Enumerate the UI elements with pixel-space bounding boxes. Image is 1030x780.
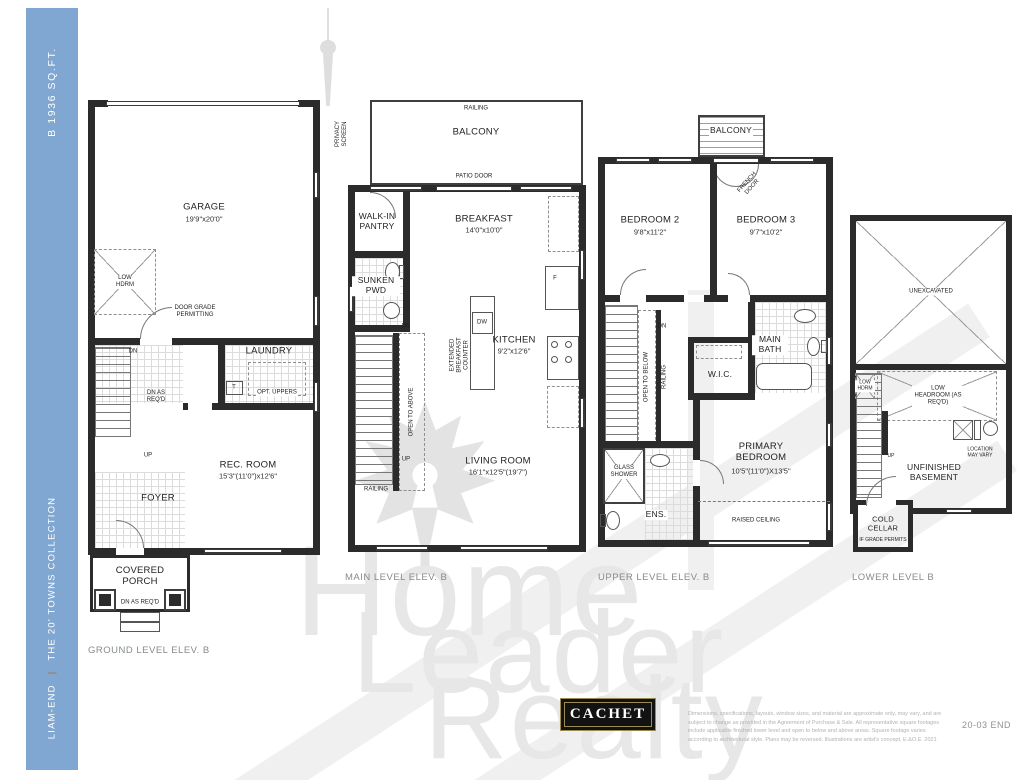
cn-tower-watermark: [320, 40, 336, 55]
collection-label: LIAM-END | THE 20' TOWNS COLLECTION: [47, 497, 58, 740]
open-to-above-label: OPEN TO ABOVE: [409, 388, 416, 437]
raised-ceiling-line: [698, 501, 830, 502]
kitchen-island: [470, 296, 495, 390]
stairs-dn-label: DN: [402, 324, 411, 331]
wall: [853, 500, 866, 505]
railing-stairs-label: RAILING: [364, 487, 388, 494]
window: [460, 546, 548, 551]
bathtub-fixture: [756, 363, 812, 390]
low-headroom-label: LOW HEADROOM (AS REQ'D): [912, 386, 964, 407]
water-heater: [983, 421, 998, 436]
wic-label: W.I.C.: [708, 370, 732, 380]
laundry-label: LAUNDRY: [246, 347, 293, 358]
stairs: [355, 335, 393, 485]
toilet-fixture: [807, 337, 820, 356]
porch-step: [120, 612, 160, 622]
opt-uppers-label: OPT. UPPERS: [256, 390, 298, 397]
stairs-dn-label: DN: [658, 324, 667, 331]
toilet-tank: [600, 514, 606, 527]
floorplan-sheet: Home Leader Realty B 1936 SQ.FT. LIAM-EN…: [0, 0, 1030, 780]
cn-tower-watermark: [323, 54, 333, 106]
cn-tower-watermark: [327, 8, 329, 42]
rec-room-dims: 15'3"(11'0")x12'6": [219, 473, 277, 482]
railing-wall: [882, 411, 888, 455]
upper-cabinets: [548, 196, 579, 252]
foyer-label: FOYER: [141, 494, 175, 505]
primary-bedroom-label: PRIMARY BEDROOM: [728, 442, 794, 464]
door-grade-note: DOOR GRADE PERMITTING: [164, 305, 226, 319]
balcony-outline: [370, 100, 583, 185]
wall: [688, 337, 750, 343]
patio-door: [436, 186, 512, 191]
balcony-label: BALCONY: [453, 128, 500, 139]
wall: [348, 185, 355, 552]
floor-plan-ground: GARAGE 19'9"x20'0" LOW HDRM DOOR GRADE P…: [88, 100, 320, 645]
privacy-screen-label: PRIVACY SCREEN: [335, 116, 349, 152]
ground-plan-title: GROUND LEVEL ELEV. B: [88, 645, 210, 656]
primary-bedroom-dims: 10'5"(11'0")X13'5": [731, 468, 790, 477]
door-opening: [693, 460, 700, 486]
door-arc: [700, 460, 724, 484]
toilet-tank: [821, 340, 827, 353]
wall: [348, 251, 410, 258]
sink-fixture: [650, 454, 670, 467]
door-opening: [188, 403, 212, 410]
grade-permits-note: IF GRADE PERMITS: [859, 538, 906, 544]
window: [946, 509, 972, 513]
floor-plan-lower: UNEXCAVATED LOW HDRM LOW HEADROOM (AS RE…: [850, 215, 1012, 565]
window: [827, 337, 832, 365]
stairs-up-label: UP: [402, 457, 410, 464]
window: [314, 172, 319, 198]
window: [204, 549, 282, 554]
mechanical-unit: [974, 420, 981, 440]
porch-pillar-core: [169, 594, 181, 606]
living-room-label: LIVING ROOM: [465, 457, 531, 468]
door-opening: [684, 295, 704, 302]
breakfast-dims: 14'0"x10'0": [466, 227, 503, 236]
railing-label: RAILING: [464, 106, 488, 113]
wall: [88, 338, 320, 345]
model-name: LIAM-END: [47, 684, 58, 739]
window: [827, 503, 832, 531]
bedroom3-dims: 9'7"x10'2": [750, 229, 783, 238]
burner: [551, 341, 558, 348]
porch-dn-label: DN AS REQ'D: [121, 600, 159, 607]
window: [370, 186, 422, 191]
kitchen-dims: 9'2"x12'6": [498, 348, 531, 357]
stairs-up-label: UP: [888, 454, 895, 460]
cachet-logo: CACHET: [560, 698, 656, 731]
balcony-label: BALCONY: [709, 126, 753, 136]
pantry-label: WALK-IN PANTRY: [351, 212, 403, 232]
sink-fixture: [794, 309, 816, 323]
wall: [896, 500, 913, 505]
bedroom2-label: BEDROOM 2: [621, 216, 680, 227]
wall: [853, 500, 858, 552]
window: [658, 158, 692, 163]
front-door-opening: [116, 548, 144, 555]
stairs-up-label: UP: [144, 453, 152, 460]
stairs: [856, 373, 882, 498]
burner: [565, 341, 572, 348]
floor-plan-main: RAILING BALCONY PRIVACY SCREEN PATIO DOO…: [348, 100, 586, 555]
low-hdrm-label: LOW HDRM: [855, 380, 875, 392]
window: [314, 296, 319, 326]
window: [580, 250, 585, 280]
furnace: [953, 420, 973, 440]
sqft-label: B 1936 SQ.FT.: [46, 47, 58, 137]
bedroom2-dims: 9'8"x11'2": [634, 229, 666, 238]
porch-pillar-core: [99, 594, 111, 606]
collection-name: THE 20' TOWNS COLLECTION: [47, 497, 58, 661]
wall: [853, 547, 913, 552]
burner: [551, 356, 558, 363]
cachet-logo-text: CACHET: [564, 702, 652, 727]
unexcavated-label: UNEXCAVATED: [908, 289, 954, 296]
wall: [710, 164, 717, 302]
rec-room-label: REC. ROOM: [220, 461, 277, 472]
stairs: [95, 347, 131, 437]
door-opening: [620, 295, 646, 302]
stairs: [605, 305, 638, 445]
porch-step: [120, 622, 160, 632]
ensuite-label: ENS.: [645, 510, 668, 520]
window: [616, 158, 650, 163]
main-plan-title: MAIN LEVEL ELEV. B: [345, 572, 447, 583]
sheet-number: 20-03 END: [962, 720, 1011, 730]
wall: [688, 337, 694, 399]
kitchen-label: KITCHEN: [492, 336, 535, 347]
open-to-below-label: OPEN TO BELOW: [644, 352, 651, 402]
bedroom3-label: BEDROOM 3: [737, 216, 796, 227]
low-headroom-label: LOW HDRM: [109, 275, 141, 289]
breakfast-label: BREAKFAST: [455, 215, 513, 226]
sink-fixture: [383, 302, 400, 319]
fridge: [545, 266, 579, 310]
door-arc: [620, 269, 646, 295]
disclaimer-text: Dimensions, specifications, layouts, win…: [688, 710, 948, 744]
upper-plan-title: UPPER LEVEL ELEV. B: [598, 572, 710, 583]
burner: [565, 356, 572, 363]
balcony-outline: [698, 115, 765, 157]
raised-ceiling-label: RAISED CEILING: [732, 518, 780, 525]
garage-door: [106, 101, 300, 106]
wall: [598, 441, 698, 448]
french-door: [713, 158, 759, 163]
toilet-fixture: [606, 511, 620, 530]
garage-dims: 19'9"x20'0": [186, 216, 223, 225]
window: [520, 186, 572, 191]
lower-cabinets: [547, 386, 579, 428]
stairs-dn-label: DN: [129, 349, 138, 356]
location-may-vary-note: LOCATION MAY VARY: [962, 447, 998, 459]
closet-shelf: [696, 345, 742, 359]
window: [376, 546, 428, 551]
extended-counter-label: EXTENDED BREAKFAST COUNTER: [450, 323, 471, 387]
railing-label: RAILING: [662, 365, 669, 389]
powder-room-label: SUNKEN PWD: [352, 276, 400, 296]
porch-label: COVERED PORCH: [108, 566, 172, 588]
window: [580, 398, 585, 428]
separator: |: [47, 671, 58, 675]
patio-door-label: PATIO DOOR: [456, 174, 493, 181]
main-bath-label: MAIN BATH: [752, 335, 788, 355]
wall: [403, 192, 410, 332]
window: [708, 541, 810, 546]
wall: [688, 393, 755, 400]
door-arc: [728, 273, 750, 295]
cold-cellar-label: COLD CELLAR: [863, 515, 903, 532]
door-opening: [140, 338, 172, 345]
living-room-dims: 16'1"x12'5"(19'7"): [469, 469, 528, 478]
garage-label: GARAGE: [183, 203, 225, 214]
door-opening: [728, 295, 750, 302]
wall: [850, 364, 1012, 370]
fridge-label: F: [553, 276, 557, 283]
wall: [313, 100, 320, 555]
basement-label: UNFINISHED BASEMENT: [905, 463, 963, 483]
laundry-tub-label: T: [232, 385, 236, 392]
wall: [579, 185, 586, 552]
dn-as-reqd-label: DN AS REQ'D: [141, 390, 171, 404]
floor-plan-upper: BALCONY FRENCH DOOR BEDROOM 2 9'8"x11'2"…: [598, 115, 833, 560]
window: [827, 423, 832, 447]
lower-plan-title: LOWER LEVEL B: [852, 572, 934, 583]
dishwasher-label: DW: [477, 320, 487, 327]
glass-shower-label: GLASS SHOWER: [605, 465, 643, 479]
wall: [218, 345, 225, 410]
wall: [908, 500, 913, 552]
window: [314, 382, 319, 412]
window: [770, 158, 814, 163]
wall: [88, 100, 95, 555]
